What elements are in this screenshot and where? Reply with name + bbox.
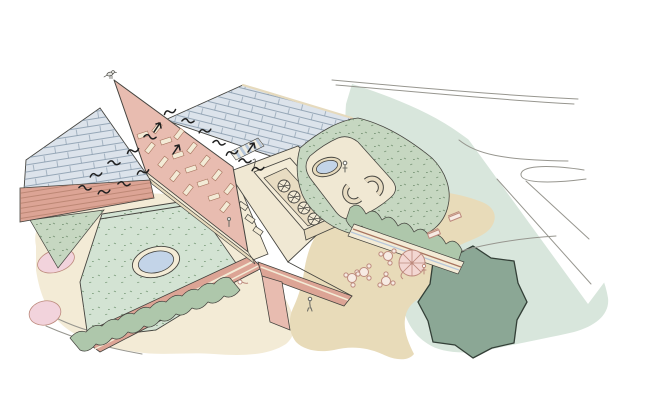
ventilation-fan	[278, 180, 290, 192]
ventilation-fan	[288, 191, 300, 203]
architectural-sketch	[0, 0, 649, 400]
swift-bird	[239, 158, 251, 163]
swift-bird	[213, 140, 225, 146]
perched-bird	[104, 71, 116, 79]
swift-bird	[164, 109, 176, 115]
illustration-canvas	[0, 0, 649, 400]
